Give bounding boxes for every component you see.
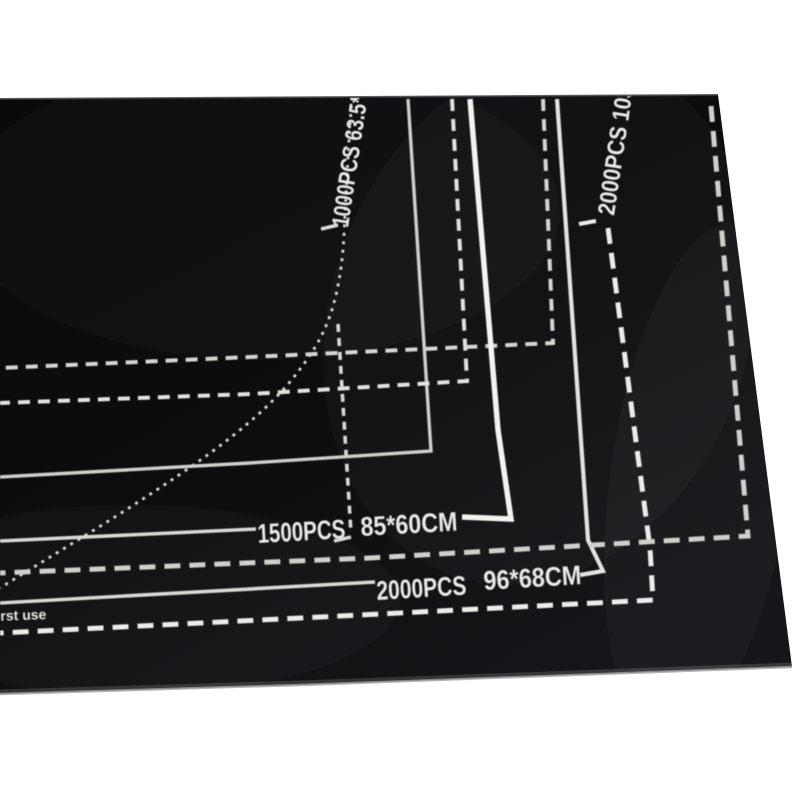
label-first-use-note: first use (0, 606, 47, 624)
product-photo: 1000PCS 63.5* 2000PCS 103 1500PCS 85*60C… (0, 0, 800, 800)
label-2000pcs-size: 96*68CM (483, 560, 583, 596)
label-1500pcs-count: 1500PCS (257, 514, 347, 549)
puzzle-mat-photo: 1000PCS 63.5* 2000PCS 103 1500PCS 85*60C… (0, 0, 800, 800)
label-1500pcs-size: 85*60CM (360, 507, 459, 542)
label-2000pcs-count: 2000PCS (376, 571, 468, 606)
